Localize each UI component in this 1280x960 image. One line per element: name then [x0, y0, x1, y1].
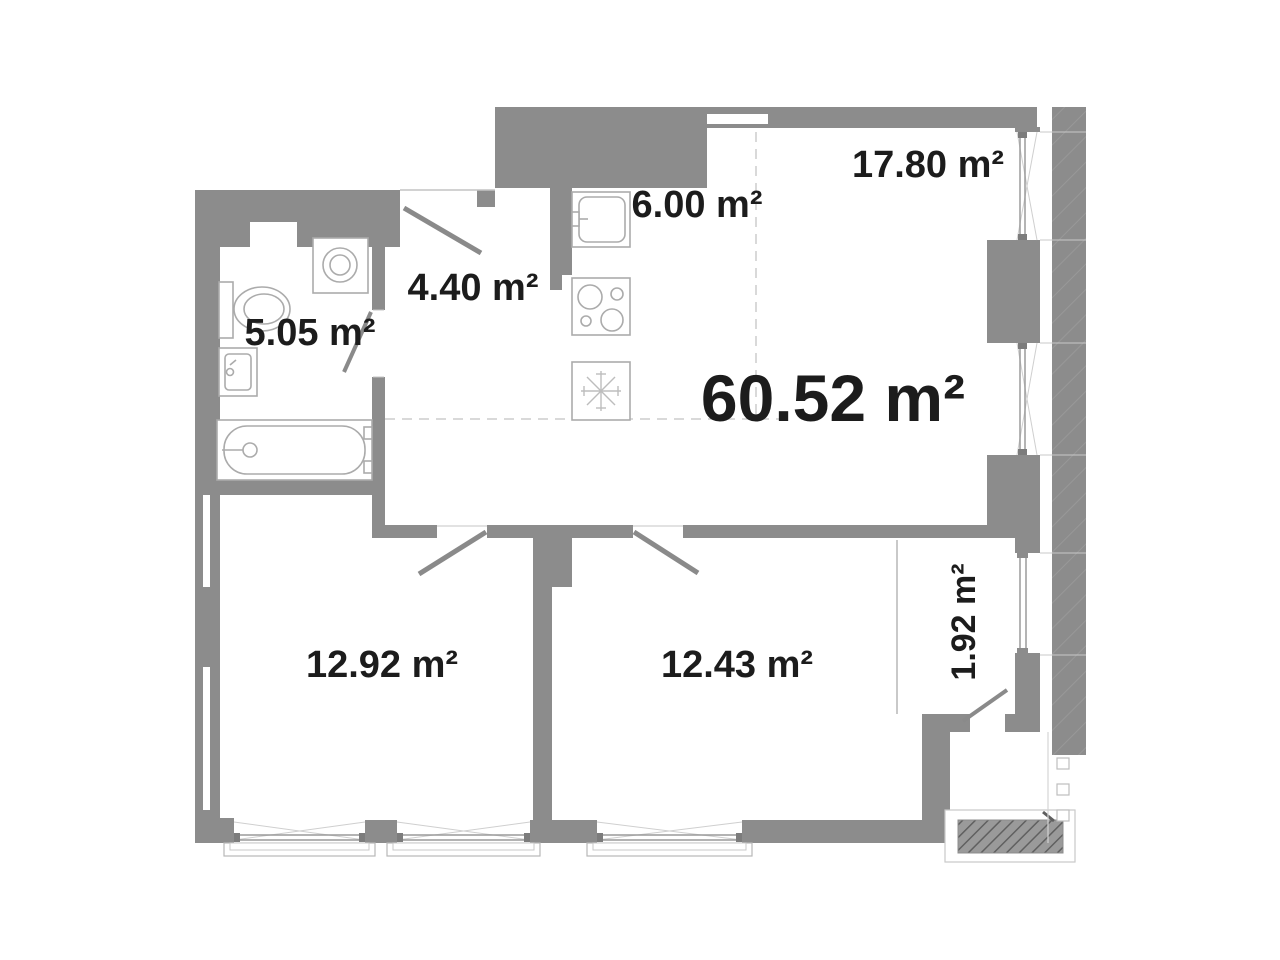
kitchen-fixtures: [572, 192, 630, 420]
wall-facade-below-loggia: [1015, 653, 1040, 732]
wall-mid-left: [385, 525, 437, 538]
entrance-niche: [707, 114, 768, 124]
wall-facade-top-sliver: [1015, 127, 1040, 132]
wall-loggia-bottom-right: [1005, 714, 1017, 732]
wall-facade-strip: [1015, 455, 1040, 553]
balcony-hatched-slab: [958, 820, 1063, 853]
window-bedroom2: [587, 820, 752, 856]
wall-between-bedrooms: [533, 587, 552, 823]
label-bathroom: 5.05 m²: [245, 312, 376, 354]
refrigerator: [572, 362, 630, 420]
wall-outer-right: [1052, 107, 1086, 755]
wall-facade-pier-1: [987, 240, 1040, 343]
wall-mid-right: [683, 525, 1018, 538]
wall-bottom-corner: [195, 818, 234, 843]
bottom-windows: [224, 820, 752, 856]
wall-bottom-right: [742, 820, 922, 843]
label-living-room: 17.80 m²: [852, 144, 1004, 186]
left-wall-slot-2: [203, 667, 210, 810]
wall-hall-kitchen-stub: [550, 275, 562, 290]
label-total-area: 60.52 m²: [701, 361, 965, 435]
wall-bottom-pier-1: [365, 820, 397, 843]
floor-plan: 5.05 m² 4.40 m² 6.00 m² 17.80 m² 60.52 m…: [0, 0, 1280, 960]
wall-entrance-stub: [477, 190, 495, 207]
bathtub: [217, 420, 372, 480]
window-loggia: [1015, 553, 1040, 653]
wall-loggia-bottom-left: [922, 714, 970, 732]
bathroom-sink: [219, 348, 257, 396]
label-kitchen: 6.00 m²: [632, 184, 763, 226]
label-hallway: 4.40 m²: [408, 267, 539, 309]
wall-kitchen-top-block: [495, 107, 707, 188]
window-living-bottom: [1015, 343, 1040, 455]
window-living-top: [1015, 132, 1040, 240]
cooktop: [572, 278, 630, 335]
wall-bathroom-right-upper: [372, 247, 385, 310]
label-bedroom-2: 12.43 m²: [661, 644, 813, 686]
wall-mid-column: [533, 525, 572, 587]
drain-elements: [1057, 758, 1069, 821]
bathroom-ceiling-notch: [250, 222, 297, 247]
window-bedroom1-right: [387, 820, 540, 856]
wall-bathroom-right-lower: [372, 377, 385, 538]
wall-bottom-pier-2: [530, 820, 597, 843]
wall-bathroom-top: [195, 190, 400, 247]
floor-plan-page: 5.05 m² 4.40 m² 6.00 m² 17.80 m² 60.52 m…: [0, 0, 1280, 960]
wall-hall-kitchen: [550, 188, 572, 275]
kitchen-sink: [572, 192, 630, 247]
left-wall-slot-1: [203, 495, 210, 587]
label-loggia: 1.92 m²: [945, 563, 983, 680]
label-bedroom-1: 12.92 m²: [306, 644, 458, 686]
window-bedroom1-left: [224, 820, 375, 856]
washing-machine: [313, 238, 368, 293]
right-windows: [1015, 132, 1040, 653]
